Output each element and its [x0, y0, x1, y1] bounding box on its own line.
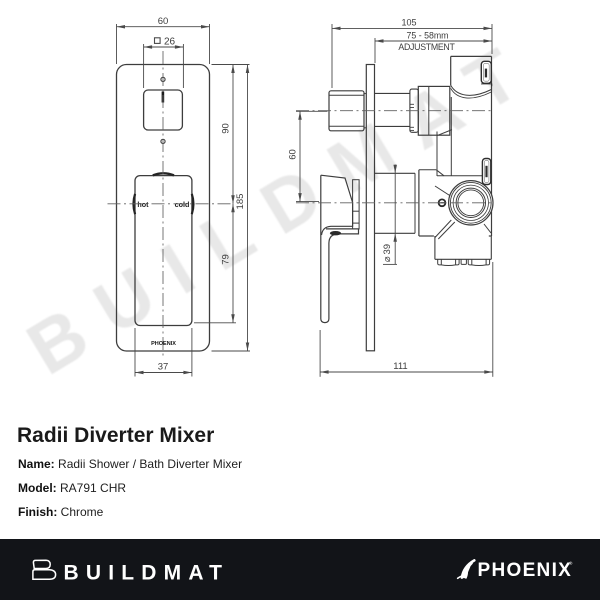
svg-text:®: ®	[569, 560, 573, 566]
svg-text:cold: cold	[175, 200, 190, 209]
svg-text:75 - 58mm: 75 - 58mm	[406, 30, 448, 40]
svg-text:PHOENIX: PHOENIX	[478, 560, 573, 581]
svg-text:37: 37	[158, 362, 169, 373]
svg-text:60: 60	[288, 149, 299, 160]
svg-text:ADJUSTMENT: ADJUSTMENT	[398, 42, 455, 52]
svg-text:90: 90	[221, 123, 232, 134]
svg-text:PHOENIX: PHOENIX	[151, 341, 176, 347]
svg-text:60: 60	[158, 16, 169, 27]
svg-text:⌀ 39: ⌀ 39	[382, 244, 393, 262]
svg-text:111: 111	[393, 361, 407, 372]
svg-text:hot: hot	[137, 200, 149, 209]
svg-text:26: 26	[164, 37, 176, 48]
svg-text:185: 185	[235, 194, 246, 210]
svg-text:79: 79	[221, 254, 232, 265]
svg-text:105: 105	[401, 18, 416, 28]
svg-text:BUILDMAT: BUILDMAT	[64, 562, 230, 585]
